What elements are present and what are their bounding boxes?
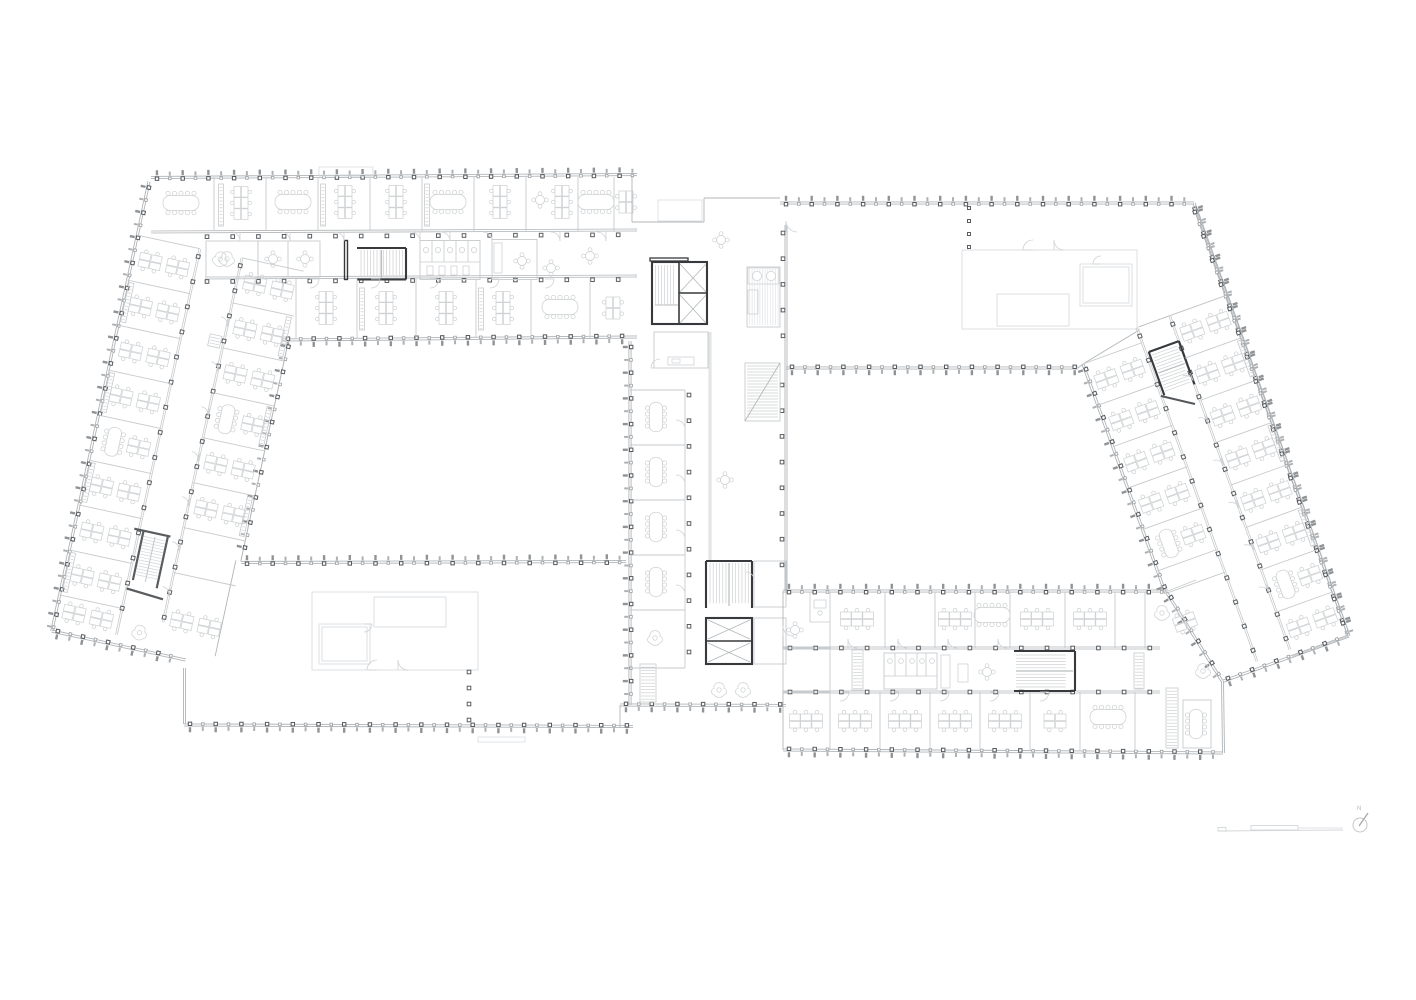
svg-text:N: N [1357,806,1361,812]
